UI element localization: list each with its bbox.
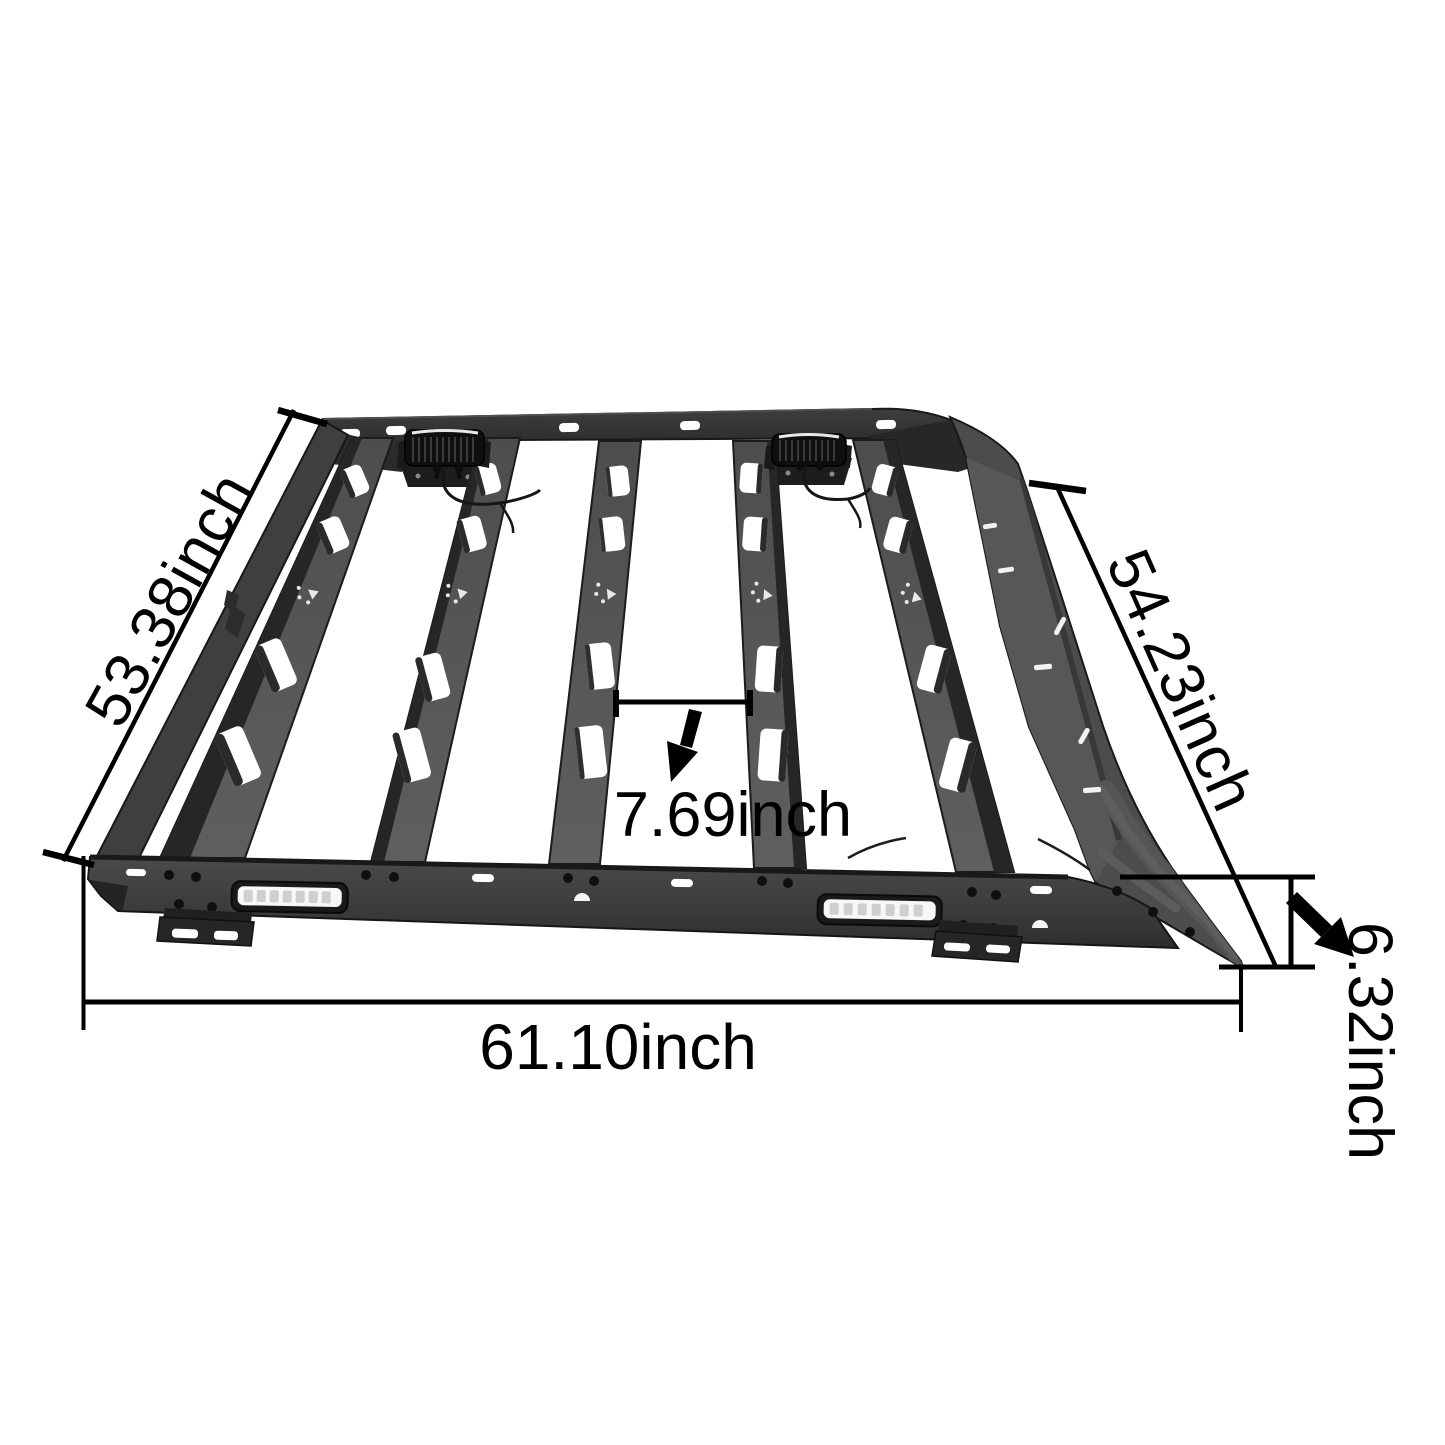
svg-text:61.10inch: 61.10inch [479, 1011, 757, 1083]
svg-text:7.69inch: 7.69inch [614, 780, 852, 850]
svg-text:6.32inch: 6.32inch [1335, 922, 1405, 1160]
